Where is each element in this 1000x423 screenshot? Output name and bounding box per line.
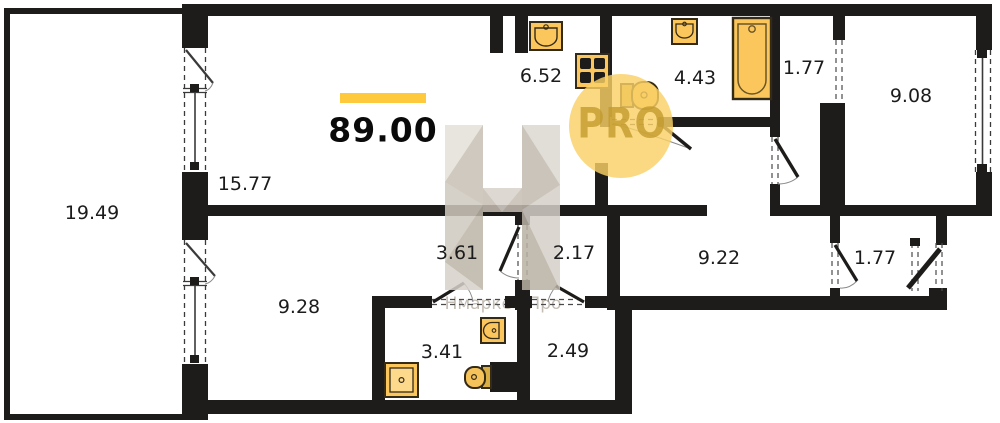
floorplan-graphics: Нмаркет.Про [0,0,1000,423]
bathtub-icon [733,18,771,99]
shower-icon [385,363,418,397]
niche [612,16,633,40]
pro-logo-text: PRO [577,99,667,148]
total-area-underline [340,93,426,103]
room-area-label: 19.49 [65,202,119,224]
room-area-label: 2.17 [553,242,595,264]
room-area-label: 9.08 [890,85,932,107]
room-area-label: 3.61 [436,242,478,264]
kitchen-sink-icon [530,22,562,50]
room-area-label: 3.41 [421,341,463,363]
room-area-label: 9.28 [278,296,320,318]
toilet-small-icon [465,366,491,388]
small-sink-icon [481,318,505,343]
room-area-label: 4.43 [674,67,716,89]
room-area-label: 6.52 [520,65,562,87]
room-area-label: 1.77 [783,57,825,79]
room-area-label: 2.49 [547,340,589,362]
room-area-label: 9.22 [698,247,740,269]
floorplan: Нмаркет.Про [0,0,1000,423]
sink-icon [672,19,697,44]
room-area-label: 15.77 [218,173,272,195]
total-area-label: 89.00 [328,111,437,150]
room-area-label: 1.77 [854,247,896,269]
